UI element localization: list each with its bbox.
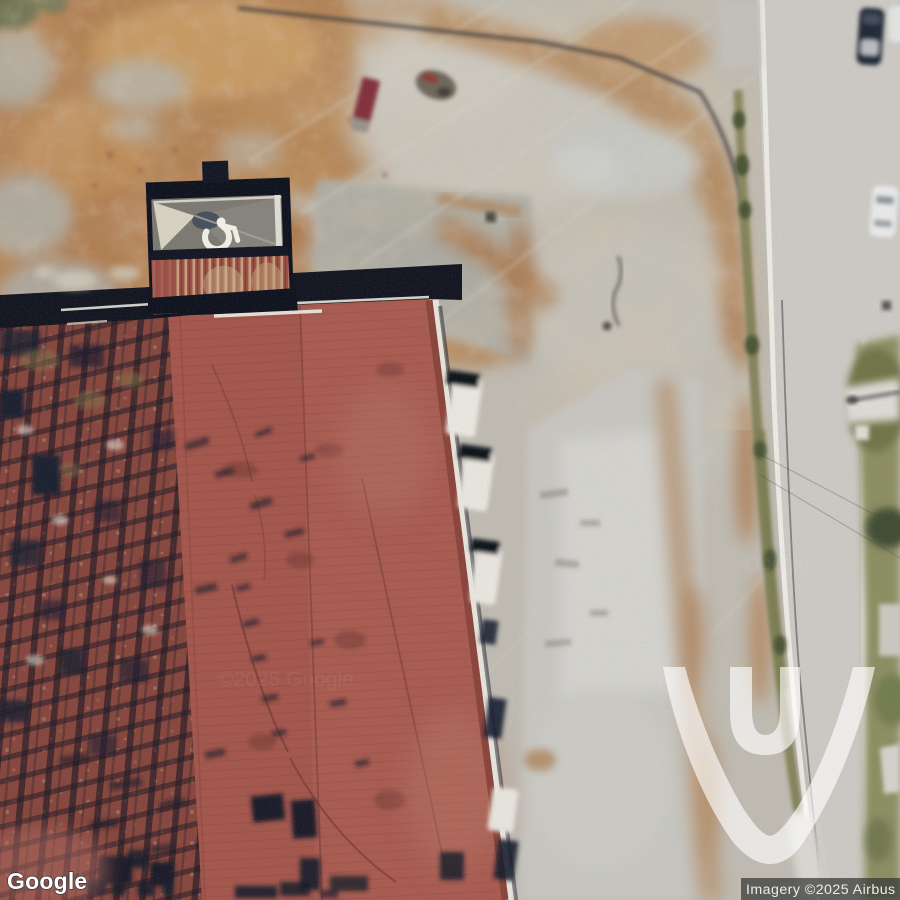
svg-text:©2025 Google: ©2025 Google: [218, 668, 354, 691]
svg-text:Imagery ©2025 Airbus: Imagery ©2025 Airbus: [746, 882, 896, 898]
svg-text:Google: Google: [7, 868, 87, 894]
svg-text:Google: Google: [745, 553, 810, 575]
